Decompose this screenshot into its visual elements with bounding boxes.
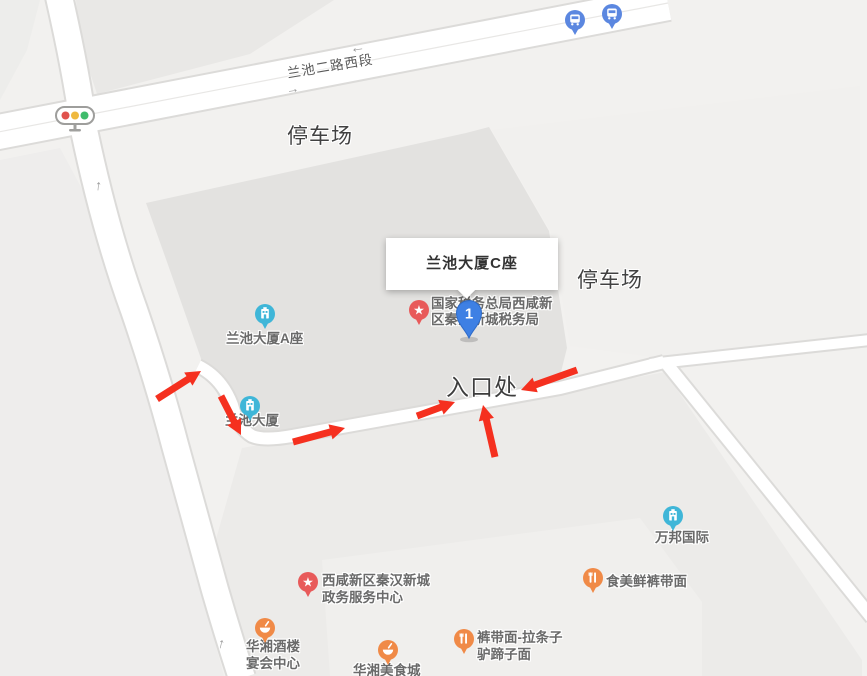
lane-arrow-east-icon: → — [285, 81, 300, 96]
food-poi-icon[interactable] — [254, 617, 276, 645]
svg-text:★: ★ — [413, 304, 425, 319]
parking-lot-label-top: 停车场 — [287, 120, 353, 150]
poi-label-kudaimian-noodle[interactable]: 裤带面-拉条子 驴蹄子面 — [477, 629, 563, 663]
star-poi-icon[interactable]: ★ — [297, 571, 319, 599]
svg-text:★: ★ — [302, 576, 314, 591]
restaurant-poi-icon[interactable] — [582, 567, 604, 595]
bus-stop-icon[interactable] — [564, 9, 586, 36]
route-marker-1[interactable]: 1 — [455, 299, 483, 343]
map-base-layer — [0, 0, 867, 676]
poi-popup[interactable]: 兰池大厦C座 — [386, 238, 558, 290]
star-poi-icon[interactable]: ★ — [408, 299, 430, 327]
building-poi-icon[interactable] — [239, 395, 261, 423]
entrance-label: 入口处 — [446, 368, 518, 402]
restaurant-poi-icon[interactable] — [453, 628, 475, 656]
popup-title: 兰池大厦C座 — [386, 238, 558, 290]
poi-label-tax-bureau[interactable]: 国家税务总局西咸新 区秦汉新城税务局 — [431, 296, 553, 328]
building-poi-icon[interactable] — [662, 505, 684, 533]
poi-label-gov-service-center[interactable]: 西咸新区秦汉新城 政务服务中心 — [322, 572, 430, 606]
parking-lot-label-east: 停车场 — [577, 264, 643, 294]
bus-stop-icon[interactable] — [601, 3, 623, 30]
building-poi-icon[interactable] — [254, 303, 276, 331]
poi-label-lanchi-tower-a[interactable]: 兰池大厦A座 — [226, 331, 303, 347]
traffic-light-icon — [53, 102, 97, 134]
lane-arrow-north-icon: ↑ — [94, 178, 102, 193]
food-poi-icon[interactable] — [377, 639, 399, 667]
route-marker-number: 1 — [465, 306, 473, 323]
poi-label-shimeixian-noodle[interactable]: 食美鲜裤带面 — [606, 574, 687, 590]
map-canvas[interactable]: 兰池二路西段 ← → ↑ ↑ 停车场 停车场 入口处 — [0, 0, 867, 676]
